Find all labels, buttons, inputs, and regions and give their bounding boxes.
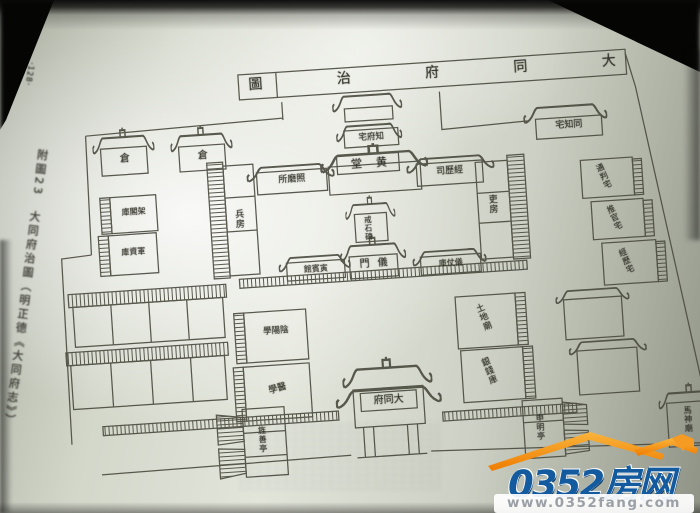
building-label-west-granary: 倉	[117, 152, 128, 164]
book-photo: 圖治府同大 宅府知 堂黄 所磨照 司歷經 兵房 吏房 庫閣架 庫資軍 倉 倉 戒…	[0, 0, 700, 513]
building-label-west-clerk-row: 兵房	[233, 209, 243, 230]
watermark-site-url: www.0352fang.com	[494, 494, 694, 513]
building-label-east-clerk-row: 吏房	[486, 194, 496, 215]
building-label-admonition-tablet: 戒石碑	[363, 215, 372, 241]
building-label-east-granary: 倉	[195, 149, 206, 161]
building-label-jingshan-pavilion: 旌善亭	[257, 426, 267, 453]
site-watermark: 0352房网 www.0352fang.com	[486, 426, 700, 513]
